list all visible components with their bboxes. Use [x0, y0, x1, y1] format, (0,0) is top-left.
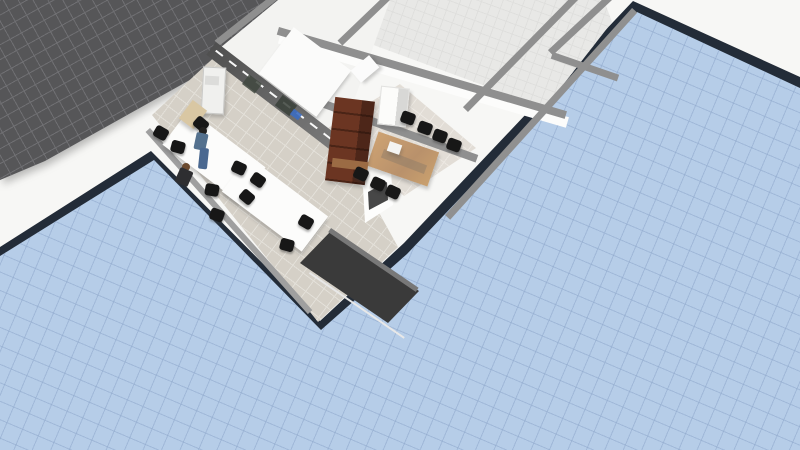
water-cooler[interactable] — [201, 66, 226, 114]
water-cooler-panel — [205, 76, 219, 86]
floorplan-3d-viewport[interactable] — [0, 0, 800, 450]
scene-root — [0, 0, 800, 450]
office-chair[interactable] — [204, 183, 220, 197]
